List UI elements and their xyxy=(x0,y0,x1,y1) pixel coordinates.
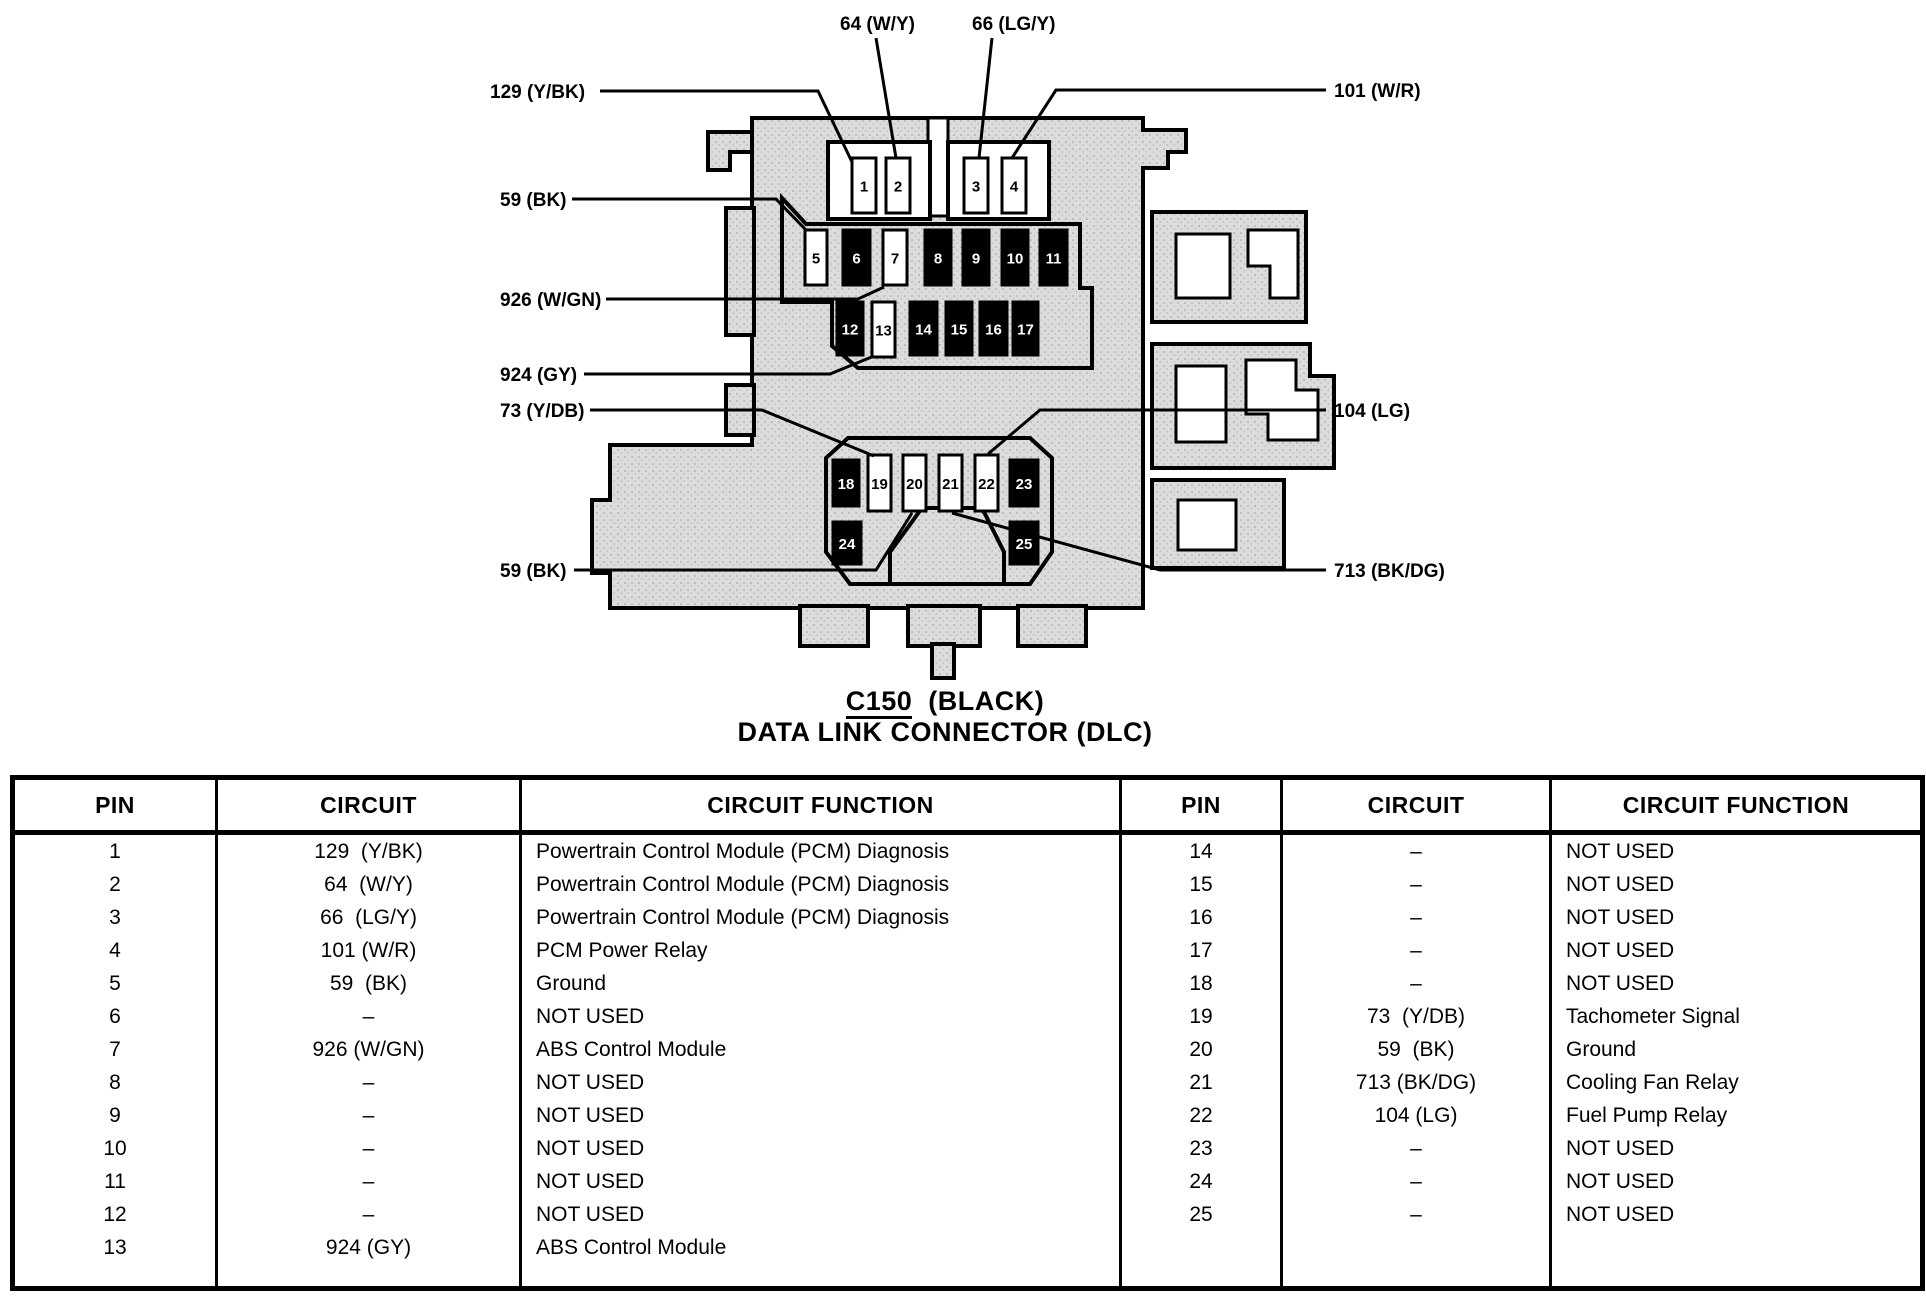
function-cell: NOT USED xyxy=(1551,1132,1923,1165)
pin-4: 4 xyxy=(1002,158,1026,213)
pin-cell: 6 xyxy=(13,1000,217,1033)
pin-cell: 3 xyxy=(13,901,217,934)
circuit-cell xyxy=(1282,1231,1551,1264)
pin-number: 16 xyxy=(985,322,1002,339)
pin-3: 3 xyxy=(964,158,988,213)
table-row: 12–NOT USED25–NOT USED xyxy=(13,1198,1923,1231)
function-cell: NOT USED xyxy=(1551,833,1923,869)
function-cell: NOT USED xyxy=(521,1165,1121,1198)
pin-cell: 17 xyxy=(1121,934,1282,967)
table-row: 10–NOT USED23–NOT USED xyxy=(13,1132,1923,1165)
pin-number: 13 xyxy=(875,323,892,340)
page: 1234567891011121314151617181920212223242… xyxy=(0,0,1926,1296)
pin-6: 6 xyxy=(843,230,870,285)
table-row: 264 (W/Y)Powertrain Control Module (PCM)… xyxy=(13,868,1923,901)
pin-cell: 7 xyxy=(13,1033,217,1066)
pin-number: 4 xyxy=(1010,179,1019,196)
pin-2: 2 xyxy=(886,158,910,213)
function-cell: NOT USED xyxy=(1551,1198,1923,1231)
pin-22: 22 xyxy=(975,455,998,511)
pin-number: 5 xyxy=(812,251,820,268)
circuit-cell: 926 (W/GN) xyxy=(217,1033,521,1066)
pin-cell: 10 xyxy=(13,1132,217,1165)
circuit-cell: – xyxy=(1282,967,1551,1000)
pin-5: 5 xyxy=(805,230,827,285)
pin-cell: 4 xyxy=(13,934,217,967)
function-cell: NOT USED xyxy=(521,1132,1121,1165)
pin-number: 25 xyxy=(1016,536,1033,553)
wire-label-59-bottom: 59 (BK) xyxy=(500,561,567,582)
function-cell: NOT USED xyxy=(1551,934,1923,967)
pin-cell: 18 xyxy=(1121,967,1282,1000)
pin-16: 16 xyxy=(980,302,1007,355)
table-row: 1129 (Y/BK)Powertrain Control Module (PC… xyxy=(13,833,1923,869)
wire-label-129: 129 (Y/BK) xyxy=(490,82,585,103)
circuit-cell: 66 (LG/Y) xyxy=(217,901,521,934)
pin-number: 22 xyxy=(978,476,995,493)
pin-number: 15 xyxy=(951,322,968,339)
pin-number: 8 xyxy=(934,251,942,268)
function-cell: NOT USED xyxy=(521,1099,1121,1132)
header-circuit-left: CIRCUIT xyxy=(217,778,521,833)
pin-number: 12 xyxy=(842,322,859,339)
circuit-cell: 73 (Y/DB) xyxy=(1282,1000,1551,1033)
pin-cell: 14 xyxy=(1121,833,1282,869)
pin-25: 25 xyxy=(1010,522,1038,564)
connector-color: (BLACK) xyxy=(928,686,1044,716)
connector-diagram: 1234567891011121314151617181920212223242… xyxy=(0,0,1926,772)
function-cell: Powertrain Control Module (PCM) Diagnosi… xyxy=(521,901,1121,934)
function-cell: Powertrain Control Module (PCM) Diagnosi… xyxy=(521,833,1121,869)
function-cell: ABS Control Module xyxy=(521,1033,1121,1066)
pin-cell: 13 xyxy=(13,1231,217,1264)
pin-number: 19 xyxy=(871,476,888,493)
pin-cell: 21 xyxy=(1121,1066,1282,1099)
pin-8: 8 xyxy=(925,230,951,285)
wire-label-73: 73 (Y/DB) xyxy=(500,401,584,422)
circuit-cell: 104 (LG) xyxy=(1282,1099,1551,1132)
caption-line2: DATA LINK CONNECTOR (DLC) xyxy=(645,717,1245,748)
table-row: 13924 (GY)ABS Control Module xyxy=(13,1231,1923,1264)
circuit-cell: 59 (BK) xyxy=(1282,1033,1551,1066)
pin-23: 23 xyxy=(1010,460,1038,506)
pin-number: 10 xyxy=(1007,251,1024,268)
function-cell: NOT USED xyxy=(521,1000,1121,1033)
pin-cell: 22 xyxy=(1121,1099,1282,1132)
pinout-table: PIN CIRCUIT CIRCUIT FUNCTION PIN CIRCUIT… xyxy=(10,775,1925,1291)
pin-7: 7 xyxy=(883,230,907,285)
function-cell: NOT USED xyxy=(1551,901,1923,934)
pin-11: 11 xyxy=(1040,230,1067,285)
pin-10: 10 xyxy=(1002,230,1028,285)
circuit-cell: – xyxy=(217,1066,521,1099)
pin-cell: 15 xyxy=(1121,868,1282,901)
pin-number: 9 xyxy=(972,251,980,268)
pin-cell: 16 xyxy=(1121,901,1282,934)
header-function-left: CIRCUIT FUNCTION xyxy=(521,778,1121,833)
pin-cell xyxy=(1121,1231,1282,1264)
wire-label-926: 926 (W/GN) xyxy=(500,290,601,311)
pin-number: 14 xyxy=(915,322,932,339)
pin-number: 11 xyxy=(1046,251,1062,268)
table-row: 6–NOT USED1973 (Y/DB)Tachometer Signal xyxy=(13,1000,1923,1033)
pin-cell: 11 xyxy=(13,1165,217,1198)
pin-14: 14 xyxy=(910,302,937,355)
table-row: 366 (LG/Y)Powertrain Control Module (PCM… xyxy=(13,901,1923,934)
circuit-cell: – xyxy=(1282,833,1551,869)
circuit-cell: – xyxy=(217,1000,521,1033)
diagram-caption: C150 (BLACK) DATA LINK CONNECTOR (DLC) xyxy=(645,686,1245,748)
circuit-cell: 713 (BK/DG) xyxy=(1282,1066,1551,1099)
pin-number: 2 xyxy=(894,179,902,196)
header-pin-left: PIN xyxy=(13,778,217,833)
function-cell: NOT USED xyxy=(1551,1165,1923,1198)
wire-label-59-top: 59 (BK) xyxy=(500,190,567,211)
pin-cell: 20 xyxy=(1121,1033,1282,1066)
circuit-cell: – xyxy=(217,1099,521,1132)
function-cell: ABS Control Module xyxy=(521,1231,1121,1264)
function-cell: PCM Power Relay xyxy=(521,934,1121,967)
pin-24: 24 xyxy=(833,522,861,564)
pin-cell: 19 xyxy=(1121,1000,1282,1033)
function-cell: Powertrain Control Module (PCM) Diagnosi… xyxy=(521,868,1121,901)
pin-15: 15 xyxy=(946,302,972,355)
wire-label-64: 64 (W/Y) xyxy=(840,14,915,35)
wire-label-101: 101 (W/R) xyxy=(1334,81,1421,102)
circuit-cell: 59 (BK) xyxy=(217,967,521,1000)
circuit-cell: – xyxy=(1282,1165,1551,1198)
pin-18: 18 xyxy=(833,460,859,506)
pin-cell: 2 xyxy=(13,868,217,901)
pin-number: 21 xyxy=(942,476,959,493)
wire-label-104: 104 (LG) xyxy=(1334,401,1410,422)
function-cell: NOT USED xyxy=(1551,868,1923,901)
pin-cell: 5 xyxy=(13,967,217,1000)
circuit-cell: 129 (Y/BK) xyxy=(217,833,521,869)
pin-cell: 23 xyxy=(1121,1132,1282,1165)
pin-number: 18 xyxy=(838,476,855,493)
pin-number: 23 xyxy=(1016,476,1033,493)
function-cell: Ground xyxy=(1551,1033,1923,1066)
wire-label-713: 713 (BK/DG) xyxy=(1334,561,1445,582)
circuit-cell: – xyxy=(1282,934,1551,967)
table-row: 4101 (W/R)PCM Power Relay17–NOT USED xyxy=(13,934,1923,967)
function-cell: Fuel Pump Relay xyxy=(1551,1099,1923,1132)
pin-cell: 25 xyxy=(1121,1198,1282,1231)
circuit-cell: – xyxy=(217,1198,521,1231)
function-cell: NOT USED xyxy=(1551,967,1923,1000)
circuit-cell: – xyxy=(1282,901,1551,934)
table-row: 559 (BK)Ground18–NOT USED xyxy=(13,967,1923,1000)
pin-20: 20 xyxy=(903,455,926,511)
pin-number: 6 xyxy=(852,251,860,268)
pin-number: 7 xyxy=(891,251,899,268)
circuit-cell: 64 (W/Y) xyxy=(217,868,521,901)
pin-number: 20 xyxy=(906,476,923,493)
wire-label-924: 924 (GY) xyxy=(500,365,577,386)
circuit-cell: – xyxy=(1282,1198,1551,1231)
function-cell: NOT USED xyxy=(521,1066,1121,1099)
table-row: 7926 (W/GN)ABS Control Module2059 (BK)Gr… xyxy=(13,1033,1923,1066)
header-function-right: CIRCUIT FUNCTION xyxy=(1551,778,1923,833)
pin-number: 1 xyxy=(860,179,868,196)
pin-cell: 1 xyxy=(13,833,217,869)
pin-cell: 12 xyxy=(13,1198,217,1231)
header-circuit-right: CIRCUIT xyxy=(1282,778,1551,833)
table-row: 9–NOT USED22104 (LG)Fuel Pump Relay xyxy=(13,1099,1923,1132)
pin-number: 24 xyxy=(839,536,856,553)
circuit-cell: 101 (W/R) xyxy=(217,934,521,967)
pin-cell: 24 xyxy=(1121,1165,1282,1198)
table-row: 8–NOT USED21713 (BK/DG)Cooling Fan Relay xyxy=(13,1066,1923,1099)
circuit-cell: – xyxy=(1282,868,1551,901)
pin-17: 17 xyxy=(1013,302,1038,355)
circuit-cell: – xyxy=(217,1165,521,1198)
header-pin-right: PIN xyxy=(1121,778,1282,833)
connector-code: C150 xyxy=(846,686,913,719)
function-cell: NOT USED xyxy=(521,1198,1121,1231)
function-cell: Cooling Fan Relay xyxy=(1551,1066,1923,1099)
pin-cell: 9 xyxy=(13,1099,217,1132)
function-cell: Ground xyxy=(521,967,1121,1000)
circuit-cell: 924 (GY) xyxy=(217,1231,521,1264)
function-cell: Tachometer Signal xyxy=(1551,1000,1923,1033)
mating-connector-shapes xyxy=(1152,212,1334,568)
caption-line1: C150 (BLACK) xyxy=(645,686,1245,717)
spacer-row xyxy=(13,1264,1923,1289)
header-row: PIN CIRCUIT CIRCUIT FUNCTION PIN CIRCUIT… xyxy=(13,778,1923,833)
pin-number: 17 xyxy=(1017,322,1034,339)
pin-19: 19 xyxy=(868,455,891,511)
pin-13: 13 xyxy=(872,302,895,357)
function-cell xyxy=(1551,1231,1923,1264)
pin-12: 12 xyxy=(837,302,863,355)
pin-cell: 8 xyxy=(13,1066,217,1099)
pin-21: 21 xyxy=(939,455,962,511)
pin-1: 1 xyxy=(852,158,876,213)
circuit-cell: – xyxy=(1282,1132,1551,1165)
table-row: 11–NOT USED24–NOT USED xyxy=(13,1165,1923,1198)
pin-9: 9 xyxy=(963,230,989,285)
wire-label-66: 66 (LG/Y) xyxy=(972,14,1055,35)
pin-number: 3 xyxy=(972,179,980,196)
circuit-cell: – xyxy=(217,1132,521,1165)
